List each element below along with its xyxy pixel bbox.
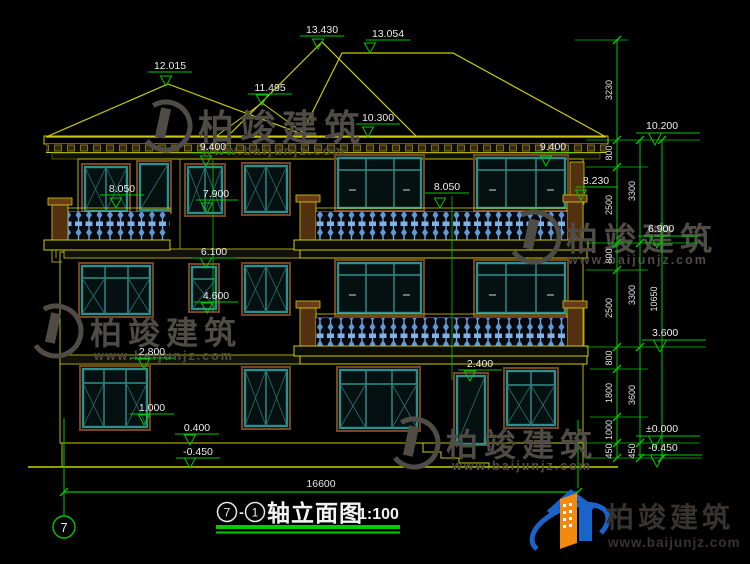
watermark-url: www.baijunjz.com — [451, 459, 592, 473]
svg-text:4.600: 4.600 — [203, 290, 229, 302]
watermark-url: www.baijunjz.com — [567, 253, 708, 267]
svg-text:8.050: 8.050 — [109, 183, 135, 195]
svg-text:9.400: 9.400 — [540, 141, 566, 153]
svg-text:450: 450 — [604, 443, 614, 458]
svg-text:10.300: 10.300 — [362, 112, 394, 124]
title-separator: - — [239, 504, 244, 520]
cad-elevation-drawing: 柏竣建筑 www.baijunjz.com 柏竣建筑 www.baijunjz.… — [0, 0, 750, 564]
elevation-marker: 13.430 — [300, 24, 344, 49]
title-axis-start: 7 — [224, 506, 231, 520]
svg-text:450: 450 — [627, 443, 637, 458]
watermark-bottom: 柏竣建筑 www.baijunjz.com — [381, 410, 598, 476]
svg-text:11.495: 11.495 — [254, 82, 285, 94]
svg-text:3300: 3300 — [627, 181, 637, 201]
window — [189, 264, 219, 312]
svg-text:2.800: 2.800 — [139, 346, 165, 358]
svg-text:12.015: 12.015 — [154, 60, 186, 72]
svg-text:3230: 3230 — [604, 80, 614, 100]
svg-text:10650: 10650 — [649, 286, 659, 311]
logo-building-icon — [560, 493, 577, 549]
balustrade — [68, 212, 170, 240]
company-logo: 柏竣建筑 www.baijunjz.com — [532, 493, 740, 550]
windows-3f — [82, 155, 568, 216]
svg-text:0.400: 0.400 — [184, 422, 210, 434]
window — [504, 368, 558, 428]
elevation-marker: 8.050 — [425, 181, 469, 208]
svg-text:3600: 3600 — [627, 385, 637, 405]
logo-brand-text: 柏竣建筑 — [606, 501, 734, 533]
svg-text:2500: 2500 — [604, 298, 614, 318]
drawing-title: 7 - 1 轴立面图 1:100 — [216, 500, 400, 534]
right-elevation-markers: 10.200 6.900 3.600 ±0.000 -0.450 — [636, 120, 706, 467]
svg-text:800: 800 — [604, 145, 614, 160]
svg-text:13.054: 13.054 — [372, 28, 404, 40]
axis-bubble: 7 — [53, 516, 75, 538]
svg-text:800: 800 — [604, 248, 614, 263]
window — [474, 155, 568, 211]
svg-text:2.400: 2.400 — [467, 358, 493, 370]
elevation-marker: 3.600 — [642, 327, 706, 352]
svg-text:6.900: 6.900 — [648, 223, 674, 235]
window — [80, 366, 150, 430]
elevation-marker: 13.054 — [365, 28, 411, 53]
window — [242, 163, 290, 215]
svg-text:1.000: 1.000 — [139, 402, 165, 414]
svg-text:3300: 3300 — [627, 285, 637, 305]
svg-text:8.050: 8.050 — [434, 181, 460, 193]
elevation-marker: 10.200 — [636, 120, 700, 145]
window — [79, 263, 153, 317]
svg-text:10.200: 10.200 — [646, 120, 678, 132]
watermark-brand: 柏竣建筑 — [566, 221, 718, 257]
window — [335, 155, 424, 211]
svg-text:7.900: 7.900 — [203, 188, 229, 200]
elevation-svg: 柏竣建筑 www.baijunjz.com 柏竣建筑 www.baijunjz.… — [0, 0, 750, 564]
title-name: 轴立面图 — [267, 500, 363, 526]
svg-text:1000: 1000 — [604, 420, 614, 440]
svg-text:9.400: 9.400 — [200, 141, 226, 153]
elevation-marker: 12.015 — [148, 60, 192, 86]
title-axis-end: 1 — [252, 506, 259, 520]
svg-text:6.100: 6.100 — [201, 246, 227, 258]
svg-text:-0.450: -0.450 — [183, 446, 213, 458]
logo-url-text: www.baijunjz.com — [607, 535, 741, 550]
elevation-marker: 11.495 — [248, 82, 292, 105]
svg-text:8.230: 8.230 — [583, 175, 609, 187]
svg-text:800: 800 — [604, 350, 614, 365]
svg-text:±0.000: ±0.000 — [646, 423, 678, 435]
elevation-marker: -0.450 — [638, 442, 702, 467]
balustrade — [316, 318, 567, 346]
svg-text:-0.450: -0.450 — [648, 442, 678, 454]
watermark-brand: 柏竣建筑 — [90, 315, 242, 351]
window — [242, 263, 290, 315]
window — [474, 260, 568, 316]
watermark-top: 柏竣建筑 www.baijunjz.com — [133, 93, 366, 159]
window — [137, 161, 171, 213]
total-width-value: 16600 — [306, 478, 335, 490]
svg-text:2500: 2500 — [604, 195, 614, 215]
elevation-marker: -0.450 — [176, 446, 220, 468]
windows-2f — [79, 260, 568, 317]
title-underline-thin — [216, 532, 400, 534]
svg-text:13.430: 13.430 — [306, 24, 338, 36]
title-scale: 1:100 — [358, 506, 399, 523]
window — [242, 367, 290, 429]
axis-bubble-number: 7 — [60, 520, 67, 535]
bottom-dimension: 16600 — [60, 478, 582, 496]
svg-text:3.600: 3.600 — [652, 327, 678, 339]
svg-text:1800: 1800 — [604, 383, 614, 403]
window — [335, 260, 424, 316]
title-underline-thick — [216, 525, 400, 529]
elevation-marker: 0.400 — [175, 422, 219, 445]
watermark-brand: 柏竣建筑 — [446, 427, 598, 463]
